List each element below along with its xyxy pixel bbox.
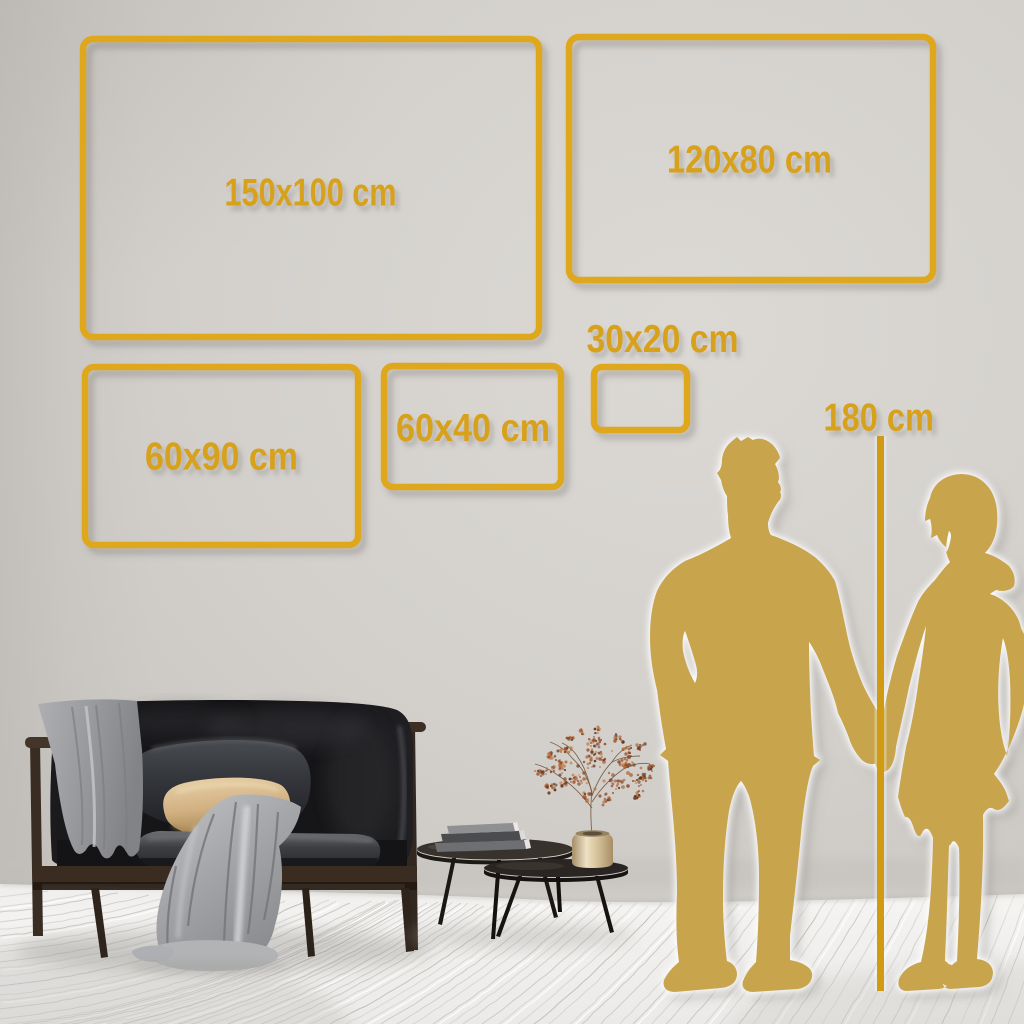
svg-text:60x40 cm: 60x40 cm xyxy=(396,407,550,450)
svg-text:120x80 cm: 120x80 cm xyxy=(667,139,832,182)
svg-text:60x90 cm: 60x90 cm xyxy=(145,436,298,479)
svg-text:30x20 cm: 30x20 cm xyxy=(587,318,739,361)
svg-text:180 cm: 180 cm xyxy=(824,397,935,440)
svg-text:150x100 cm: 150x100 cm xyxy=(225,172,397,215)
